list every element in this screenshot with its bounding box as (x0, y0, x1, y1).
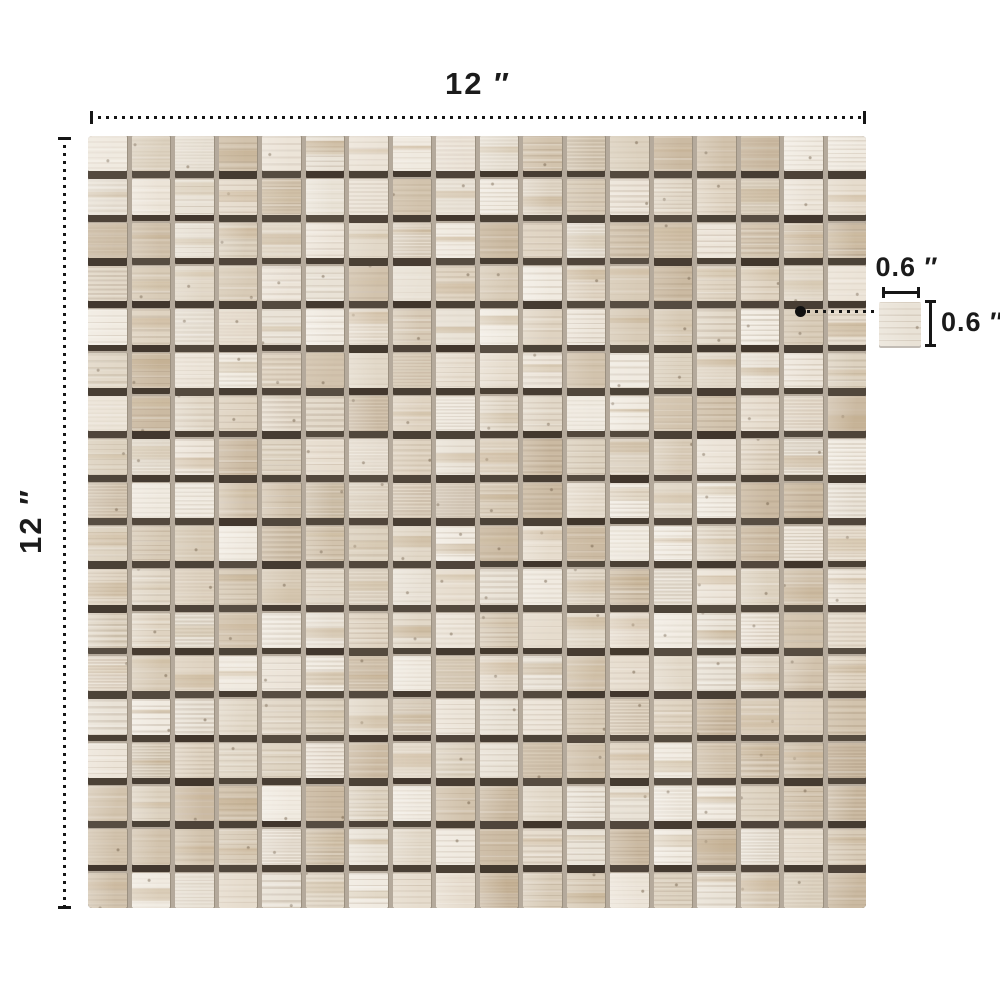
mosaic-tile (436, 526, 475, 561)
mosaic-tile (654, 873, 693, 908)
mosaic-tile (828, 353, 867, 388)
mosaic-tile (610, 569, 649, 604)
mosaic-tile (828, 309, 867, 344)
mosaic-tile (219, 439, 258, 474)
mosaic-tile (393, 353, 432, 388)
mosaic-tile (567, 136, 606, 171)
mosaic-tile (828, 136, 867, 171)
mosaic-tile (828, 266, 867, 301)
mosaic-tile (697, 266, 736, 301)
mosaic-tile (828, 179, 867, 214)
mosaic-tile (784, 136, 823, 171)
mosaic-tile (132, 223, 171, 258)
mosaic-tile (697, 483, 736, 518)
mosaic-tile (393, 309, 432, 344)
mosaic-tile (219, 656, 258, 691)
mosaic-tile (654, 439, 693, 474)
mosaic-tile (610, 353, 649, 388)
chip-height-bracket (929, 300, 932, 347)
mosaic-tile (393, 223, 432, 258)
mosaic-tile (88, 483, 127, 518)
mosaic-tile (436, 873, 475, 908)
mosaic-tile (175, 656, 214, 691)
mosaic-tile (610, 309, 649, 344)
mosaic-tile (219, 353, 258, 388)
mosaic-tile (480, 266, 519, 301)
mosaic-tile (349, 656, 388, 691)
mosaic-tile (349, 743, 388, 778)
mosaic-tile (654, 743, 693, 778)
mosaic-tile (567, 829, 606, 864)
mosaic-tile (523, 179, 562, 214)
mosaic-tile (567, 743, 606, 778)
mosaic-tile (480, 136, 519, 171)
mosaic-tile (828, 743, 867, 778)
mosaic-tile (697, 569, 736, 604)
mosaic-tile (741, 829, 780, 864)
mosaic-tile (436, 179, 475, 214)
mosaic-tile (654, 223, 693, 258)
mosaic-tile (828, 223, 867, 258)
mosaic-tile (219, 786, 258, 821)
mosaic-tile (654, 829, 693, 864)
mosaic-tile (306, 483, 345, 518)
mosaic-tile (132, 179, 171, 214)
mosaic-tile (741, 309, 780, 344)
mosaic-tile (393, 526, 432, 561)
mosaic-tile (784, 439, 823, 474)
chip-height-label: 0.6 ″ (941, 307, 1000, 338)
mosaic-tile (219, 873, 258, 908)
mosaic-tile (306, 656, 345, 691)
mosaic-tile (567, 873, 606, 908)
mosaic-tile (784, 613, 823, 648)
sheet-height-label: 12 ″ (13, 488, 49, 554)
mosaic-tile (306, 743, 345, 778)
mosaic-tile (393, 439, 432, 474)
mosaic-tile (262, 353, 301, 388)
mosaic-tile (741, 439, 780, 474)
mosaic-tile (741, 656, 780, 691)
mosaic-tile (436, 829, 475, 864)
mosaic-tile (262, 743, 301, 778)
mosaic-tile (88, 353, 127, 388)
mosaic-tile (697, 136, 736, 171)
mosaic-tile (393, 179, 432, 214)
mosaic-tile (306, 136, 345, 171)
mosaic-tile (523, 526, 562, 561)
mosaic-tile (88, 136, 127, 171)
dimension-end-cap (58, 906, 71, 909)
mosaic-tile (523, 309, 562, 344)
mosaic-tile (567, 396, 606, 431)
mosaic-tile (436, 569, 475, 604)
mosaic-tile (175, 613, 214, 648)
mosaic-tile (175, 483, 214, 518)
mosaic-tile (262, 829, 301, 864)
dimension-end-cap (863, 111, 866, 124)
chip-sample-tile (879, 302, 921, 346)
mosaic-tile (610, 266, 649, 301)
mosaic-tile (697, 526, 736, 561)
mosaic-tile (697, 353, 736, 388)
mosaic-tile (480, 569, 519, 604)
mosaic-tile (784, 656, 823, 691)
mosaic-tile (828, 526, 867, 561)
mosaic-tile (88, 439, 127, 474)
mosaic-tile (88, 309, 127, 344)
mosaic-tile (219, 699, 258, 734)
mosaic-tile (219, 179, 258, 214)
mosaic-tile (436, 439, 475, 474)
mosaic-tile (306, 396, 345, 431)
mosaic-tile (175, 396, 214, 431)
bracket-tick (925, 300, 936, 303)
mosaic-tile (523, 873, 562, 908)
mosaic-tile (480, 483, 519, 518)
mosaic-tile (741, 396, 780, 431)
mosaic-tile (784, 223, 823, 258)
mosaic-tile (523, 613, 562, 648)
mosaic-tile (88, 526, 127, 561)
mosaic-tile (654, 786, 693, 821)
mosaic-tile (306, 266, 345, 301)
mosaic-tile (306, 179, 345, 214)
mosaic-tile (393, 569, 432, 604)
mosaic-tile (219, 223, 258, 258)
mosaic-tile (784, 743, 823, 778)
mosaic-tile (741, 873, 780, 908)
mosaic-tile (175, 266, 214, 301)
mosaic-tile (828, 439, 867, 474)
mosaic-tile (828, 569, 867, 604)
mosaic-tile (262, 266, 301, 301)
mosaic-tile (393, 656, 432, 691)
mosaic-tile (610, 656, 649, 691)
mosaic-tile (610, 396, 649, 431)
mosaic-tile (784, 829, 823, 864)
sheet-width-dimension-line (90, 116, 866, 119)
mosaic-tile (784, 266, 823, 301)
mosaic-tile (393, 136, 432, 171)
mosaic-tile (306, 223, 345, 258)
mosaic-tile (784, 526, 823, 561)
mosaic-tile (436, 656, 475, 691)
mosaic-tile (436, 483, 475, 518)
mosaic-tile (132, 526, 171, 561)
mosaic-tile (349, 873, 388, 908)
mosaic-tile (784, 396, 823, 431)
mosaic-tile (567, 309, 606, 344)
mosaic-tile (349, 266, 388, 301)
mosaic-tile (132, 439, 171, 474)
mosaic-tile (523, 569, 562, 604)
mosaic-tile (132, 266, 171, 301)
mosaic-tile (654, 309, 693, 344)
sheet-width-label: 12 ″ (90, 66, 866, 102)
mosaic-tile (567, 786, 606, 821)
mosaic-tile (262, 439, 301, 474)
mosaic-tile (306, 699, 345, 734)
mosaic-tile (567, 656, 606, 691)
mosaic-tile (697, 309, 736, 344)
mosaic-tile (523, 483, 562, 518)
mosaic-tile (132, 396, 171, 431)
mosaic-tile (480, 396, 519, 431)
mosaic-tile (784, 483, 823, 518)
mosaic-tile (654, 179, 693, 214)
mosaic-tile (654, 266, 693, 301)
mosaic-tile (349, 613, 388, 648)
mosaic-tile (610, 439, 649, 474)
mosaic-tile (306, 873, 345, 908)
mosaic-tile (349, 439, 388, 474)
mosaic-tile (567, 483, 606, 518)
mosaic-tile (349, 829, 388, 864)
mosaic-tile (610, 223, 649, 258)
mosaic-tile (697, 656, 736, 691)
mosaic-tile (741, 223, 780, 258)
mosaic-tile (480, 179, 519, 214)
mosaic-tile (567, 179, 606, 214)
mosaic-tile (175, 743, 214, 778)
mosaic-tile (523, 266, 562, 301)
mosaic-tile (88, 743, 127, 778)
mosaic-tile (784, 179, 823, 214)
mosaic-tile (697, 439, 736, 474)
mosaic-tile (262, 396, 301, 431)
mosaic-tile (262, 699, 301, 734)
mosaic-tile (523, 136, 562, 171)
mosaic-tile (436, 699, 475, 734)
mosaic-tile (219, 136, 258, 171)
mosaic-tile (480, 656, 519, 691)
mosaic-tile (306, 353, 345, 388)
mosaic-tile (697, 829, 736, 864)
mosaic-tile (610, 873, 649, 908)
mosaic-tile (828, 829, 867, 864)
mosaic-tile (741, 699, 780, 734)
mosaic-tile (219, 569, 258, 604)
mosaic-tile (88, 656, 127, 691)
mosaic-tile (480, 829, 519, 864)
mosaic-tile (132, 569, 171, 604)
mosaic-tile (784, 873, 823, 908)
mosaic-tile (175, 786, 214, 821)
mosaic-tile (393, 613, 432, 648)
bracket-tick (925, 344, 936, 347)
chip-width-label: 0.6 ″ (872, 252, 942, 283)
mosaic-tile (697, 786, 736, 821)
mosaic-tile (393, 396, 432, 431)
mosaic-tile (480, 309, 519, 344)
mosaic-tile (436, 309, 475, 344)
mosaic-tile (828, 483, 867, 518)
mosaic-tile (262, 179, 301, 214)
tile-dimension-diagram: 12 ″ 12 ″ 0.6 ″ 0.6 ″ (0, 0, 1000, 1000)
mosaic-tile (654, 613, 693, 648)
bracket-tick (917, 287, 920, 298)
mosaic-tile (132, 613, 171, 648)
mosaic-tile-sheet (88, 136, 866, 908)
mosaic-tile (175, 526, 214, 561)
mosaic-tile (610, 179, 649, 214)
mosaic-tile (219, 613, 258, 648)
mosaic-tile (88, 179, 127, 214)
mosaic-tile (88, 396, 127, 431)
dimension-end-cap (58, 137, 71, 140)
mosaic-tile (132, 699, 171, 734)
mosaic-tile (523, 223, 562, 258)
mosaic-tile (349, 309, 388, 344)
mosaic-tile (262, 483, 301, 518)
mosaic-tile (654, 483, 693, 518)
mosaic-tile (349, 179, 388, 214)
mosaic-tile (175, 223, 214, 258)
mosaic-tile (132, 483, 171, 518)
mosaic-tile (523, 353, 562, 388)
mosaic-tile (610, 829, 649, 864)
mosaic-tile (480, 786, 519, 821)
mosaic-tile (393, 786, 432, 821)
mosaic-tile (175, 439, 214, 474)
mosaic-tile (175, 699, 214, 734)
mosaic-tile (349, 786, 388, 821)
mosaic-tile (523, 439, 562, 474)
mosaic-tile (523, 656, 562, 691)
mosaic-tile (219, 396, 258, 431)
mosaic-tile (393, 873, 432, 908)
mosaic-tile (436, 136, 475, 171)
mosaic-tile (349, 223, 388, 258)
chip-leader-line (807, 310, 876, 313)
mosaic-tile (828, 873, 867, 908)
chip-width-bracket (882, 291, 920, 294)
mosaic-tile (349, 699, 388, 734)
mosaic-tile (784, 699, 823, 734)
mosaic-tile (262, 223, 301, 258)
mosaic-tile (132, 873, 171, 908)
mosaic-tile (697, 743, 736, 778)
mosaic-tile (523, 699, 562, 734)
mosaic-tile (349, 396, 388, 431)
mosaic-tile (697, 179, 736, 214)
mosaic-tile (349, 353, 388, 388)
mosaic-tile (654, 656, 693, 691)
mosaic-tile (306, 786, 345, 821)
mosaic-tile (828, 396, 867, 431)
mosaic-tile (436, 353, 475, 388)
mosaic-tile (697, 613, 736, 648)
mosaic-tile (610, 743, 649, 778)
mosaic-tile (523, 396, 562, 431)
mosaic-tile (654, 136, 693, 171)
mosaic-tile (132, 743, 171, 778)
mosaic-tile (741, 743, 780, 778)
mosaic-tile (567, 569, 606, 604)
mosaic-tile (132, 786, 171, 821)
mosaic-tile (828, 699, 867, 734)
mosaic-tile (393, 266, 432, 301)
mosaic-tile (654, 396, 693, 431)
mosaic-tile (610, 613, 649, 648)
mosaic-tile (349, 526, 388, 561)
mosaic-tile (567, 699, 606, 734)
mosaic-tile (654, 526, 693, 561)
mosaic-tile (567, 439, 606, 474)
mosaic-tile (306, 829, 345, 864)
mosaic-tile (480, 613, 519, 648)
mosaic-tile (784, 569, 823, 604)
mosaic-tile (306, 439, 345, 474)
mosaic-tile (741, 526, 780, 561)
mosaic-tile (741, 136, 780, 171)
mosaic-tile (567, 613, 606, 648)
mosaic-tile (88, 266, 127, 301)
mosaic-tile (741, 613, 780, 648)
mosaic-tile (262, 656, 301, 691)
mosaic-tile (393, 743, 432, 778)
mosaic-tile (219, 829, 258, 864)
mosaic-tile (480, 873, 519, 908)
mosaic-tile (480, 526, 519, 561)
mosaic-tile (523, 743, 562, 778)
mosaic-tile (262, 613, 301, 648)
mosaic-tile (175, 873, 214, 908)
mosaic-tile (480, 223, 519, 258)
mosaic-tile (436, 396, 475, 431)
mosaic-tile (175, 136, 214, 171)
mosaic-tile (393, 829, 432, 864)
mosaic-tile (219, 309, 258, 344)
mosaic-tile (262, 873, 301, 908)
mosaic-tile (436, 743, 475, 778)
mosaic-tile (436, 786, 475, 821)
mosaic-tile (610, 526, 649, 561)
mosaic-tile (175, 353, 214, 388)
mosaic-tile (132, 136, 171, 171)
mosaic-tile (567, 353, 606, 388)
mosaic-tile (175, 179, 214, 214)
mosaic-tile (610, 483, 649, 518)
mosaic-tile (610, 786, 649, 821)
mosaic-tile (741, 353, 780, 388)
mosaic-tile (132, 309, 171, 344)
bracket-tick (882, 287, 885, 298)
mosaic-tile (828, 656, 867, 691)
mosaic-tile (88, 613, 127, 648)
mosaic-tile (567, 526, 606, 561)
mosaic-tile (88, 873, 127, 908)
mosaic-tile (784, 786, 823, 821)
mosaic-tile (480, 699, 519, 734)
mosaic-tile (219, 266, 258, 301)
mosaic-tile (88, 223, 127, 258)
mosaic-tile (306, 526, 345, 561)
mosaic-tile (567, 223, 606, 258)
mosaic-tile (175, 309, 214, 344)
mosaic-tile (88, 829, 127, 864)
mosaic-tile (306, 613, 345, 648)
mosaic-tile (741, 569, 780, 604)
mosaic-tile (523, 829, 562, 864)
mosaic-tile (132, 829, 171, 864)
mosaic-tile (262, 136, 301, 171)
chip-leader-dot (795, 306, 806, 317)
mosaic-tile (697, 699, 736, 734)
mosaic-tile (567, 266, 606, 301)
mosaic-tile (436, 266, 475, 301)
